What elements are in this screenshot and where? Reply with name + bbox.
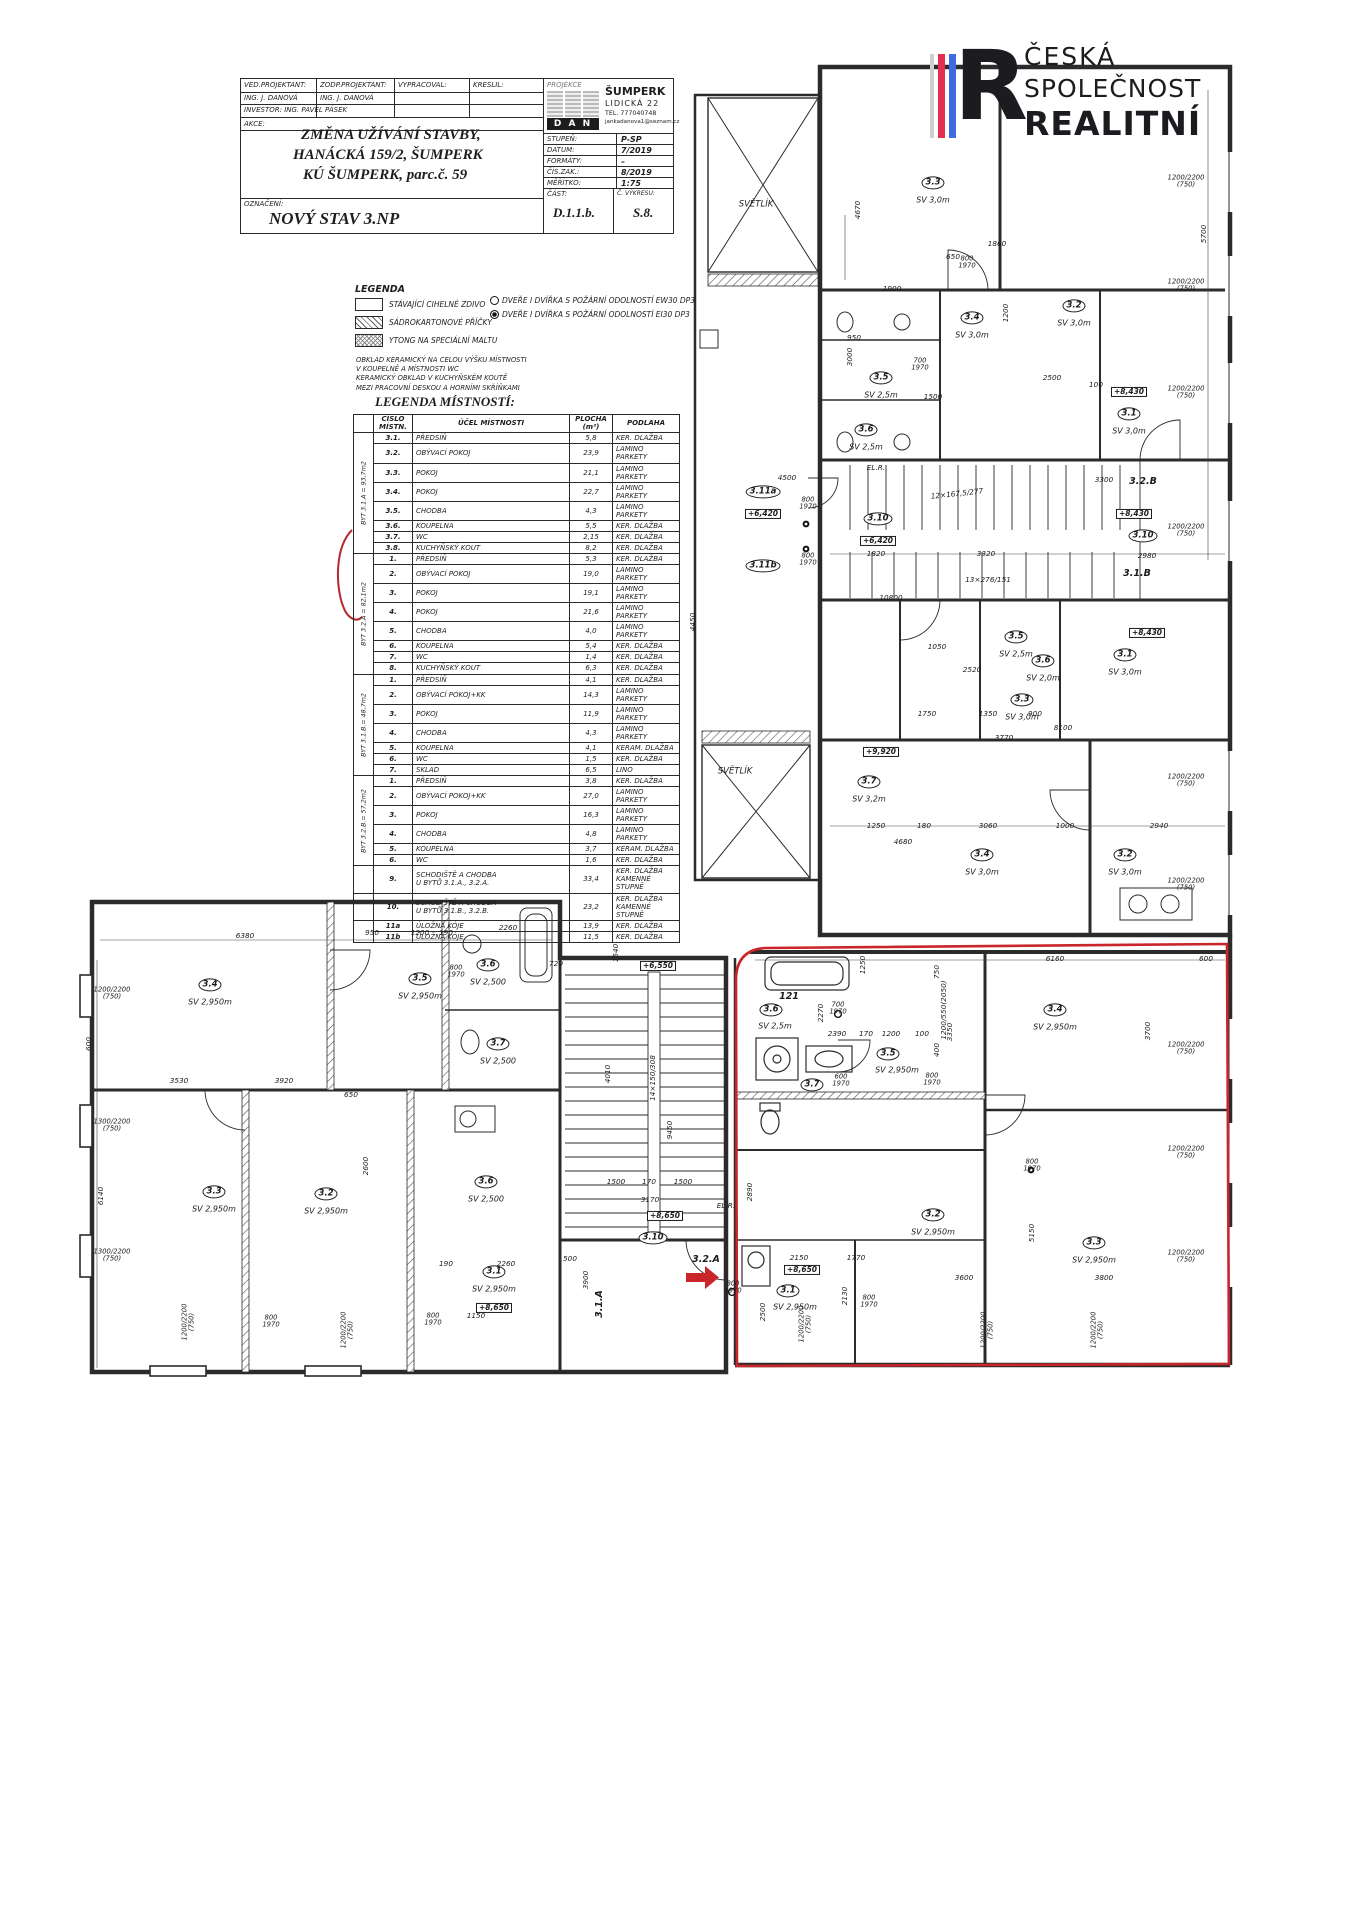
dan-logo: D A N bbox=[547, 118, 599, 130]
apartment-group-cell: BYT 3.2.A = 82,1m2 bbox=[354, 553, 374, 674]
swatch-brick-icon bbox=[355, 298, 383, 311]
vykres-label: Č. VÝKRESU: bbox=[617, 190, 655, 197]
table-row: 3.6.KOUPELNA5,5KER. DLAŽBA bbox=[354, 520, 680, 531]
legend-title: LEGENDA bbox=[355, 284, 775, 295]
table-row: 3.5.CHODBA4,3LAMINO PARKETY bbox=[354, 501, 680, 520]
table-row: 4.CHODBA4,3LAMINO PARKETY bbox=[354, 723, 680, 742]
table-row: 9.SCHODIŠTĚ A CHODBAU BYTŮ 3.1.A., 3.2.A… bbox=[354, 866, 680, 893]
column-header: ČÍSLOMÍSTN. bbox=[374, 415, 413, 433]
legend-item-label: STÁVAJÍCÍ CIHELNÉ ZDIVO bbox=[389, 300, 485, 309]
room-area-cell: 14,3 bbox=[570, 685, 613, 704]
room-purpose-cell: POKOJ bbox=[413, 584, 570, 603]
room-purpose-cell: POKOJ bbox=[413, 806, 570, 825]
room-floor-cell: KER. DLAŽBAKAMENNÉ STUPNĚ bbox=[613, 893, 680, 920]
projekce-label: PROJEKCE bbox=[547, 81, 582, 89]
room-floor-cell: KER. DLAŽBA bbox=[613, 433, 680, 444]
open-circle-icon bbox=[490, 296, 499, 305]
room-purpose-cell: PŘEDSÍŇ bbox=[413, 433, 570, 444]
project-title-line1: ZMĚNA UŽÍVÁNÍ STAVBY, bbox=[301, 127, 481, 144]
room-floor-cell: LAMINO PARKETY bbox=[613, 584, 680, 603]
field-value: 1:75 bbox=[621, 179, 641, 188]
room-purpose-cell: PŘEDSÍŇ bbox=[413, 775, 570, 786]
table-row: 3.7.WC2,15KER. DLAŽBA bbox=[354, 531, 680, 542]
room-purpose-cell: PŘEDSÍŇ bbox=[413, 553, 570, 564]
table-row: BYT 3.1.B.= 48,7m21.PŘEDSÍŇ4,1KER. DLAŽB… bbox=[354, 674, 680, 685]
room-number-cell: 4. bbox=[374, 603, 413, 622]
room-purpose-cell: OBÝVACÍ POKOJ bbox=[413, 444, 570, 463]
room-area-cell: 8,2 bbox=[570, 542, 613, 553]
room-number-cell: 5. bbox=[374, 742, 413, 753]
room-number-cell: 11b bbox=[374, 931, 413, 942]
room-number-cell: 3. bbox=[374, 704, 413, 723]
table-row: 11bÚLOŽNÁ KÓJE11,5KER. DLAŽBA bbox=[354, 931, 680, 942]
room-floor-cell: LAMINO PARKETY bbox=[613, 723, 680, 742]
table-row: 3.POKOJ16,3LAMINO PARKETY bbox=[354, 806, 680, 825]
room-area-cell: 11,9 bbox=[570, 704, 613, 723]
room-floor-cell: LAMINO PARKETY bbox=[613, 825, 680, 844]
room-number-cell: 4. bbox=[374, 723, 413, 742]
apartment-group-label: BYT 3.1.A = 93,7m2 bbox=[360, 461, 367, 525]
table-row: 4.POKOJ21,6LAMINO PARKETY bbox=[354, 603, 680, 622]
field-value: ING. J. DANOVÁ bbox=[244, 94, 298, 102]
room-floor-cell: KER. DLAŽBA bbox=[613, 663, 680, 674]
brand-line1: ČESKÁ bbox=[1024, 42, 1116, 71]
room-area-cell: 4,1 bbox=[570, 674, 613, 685]
room-floor-cell: LAMINO PARKETY bbox=[613, 806, 680, 825]
drawing-number: S.8. bbox=[633, 205, 653, 221]
room-purpose-cell: KOUPELNA bbox=[413, 520, 570, 531]
note-line: MEZI PRACOVNÍ DESKOU A HORNÍMI SKŘÍŇKAMI bbox=[356, 384, 527, 393]
field-label: ZODP.PROJEKTANT: bbox=[320, 81, 387, 89]
table-row: 3.POKOJ11,9LAMINO PARKETY bbox=[354, 704, 680, 723]
field-value: 7/2019 bbox=[621, 146, 652, 155]
room-floor-cell: KER. DLAŽBA bbox=[613, 753, 680, 764]
swatch-ytong-icon bbox=[355, 334, 383, 347]
room-floor-cell: LAMINO PARKETY bbox=[613, 463, 680, 482]
room-purpose-cell: ÚLOŽNÁ KÓJE bbox=[413, 920, 570, 931]
room-floor-cell: LAMINO PARKETY bbox=[613, 482, 680, 501]
room-floor-cell: LAMINO PARKETY bbox=[613, 704, 680, 723]
room-floor-cell: KER. DLAŽBA bbox=[613, 855, 680, 866]
room-purpose-cell: CHODBA bbox=[413, 622, 570, 641]
highlighted-apartment-walls bbox=[735, 935, 1234, 1365]
firm-street: LIDICKÁ 22 bbox=[605, 99, 659, 108]
room-floor-cell: KER. DLAŽBA bbox=[613, 920, 680, 931]
room-number-cell: 10. bbox=[374, 893, 413, 920]
highlight-outline bbox=[736, 944, 1229, 1366]
room-table: ČÍSLOMÍSTN. ÚČEL MÍSTNOSTI PLOCHA(m²) PO… bbox=[353, 414, 680, 943]
table-row: 6.WC1,5KER. DLAŽBA bbox=[354, 753, 680, 764]
room-floor-cell: KER. DLAŽBA bbox=[613, 641, 680, 652]
field-label: STUPEŇ: bbox=[547, 135, 577, 143]
room-area-cell: 4,3 bbox=[570, 723, 613, 742]
logo-stripe-gray bbox=[930, 54, 934, 138]
room-area-cell: 19,0 bbox=[570, 564, 613, 583]
room-area-cell: 6,5 bbox=[570, 764, 613, 775]
room-area-cell: 21,1 bbox=[570, 463, 613, 482]
table-row: 5.CHODBA4,0LAMINO PARKETY bbox=[354, 622, 680, 641]
room-floor-cell: KER. DLAŽBA bbox=[613, 553, 680, 564]
room-floor-cell: KER. DLAŽBA bbox=[613, 531, 680, 542]
room-area-cell: 5,5 bbox=[570, 520, 613, 531]
room-number-cell: 3.2. bbox=[374, 444, 413, 463]
room-area-cell: 2,15 bbox=[570, 531, 613, 542]
upper-block-walls bbox=[695, 67, 1234, 935]
room-purpose-cell: SCHODIŠTĚ A CHODBAU BYTŮ 3.1.A., 3.2.A. bbox=[413, 866, 570, 893]
table-row: 5.KOUPELNA4,1KERAM. DLAŽBA bbox=[354, 742, 680, 753]
room-area-cell: 1,5 bbox=[570, 753, 613, 764]
field-value: P-SP bbox=[621, 135, 642, 144]
akce-label: AKCE: bbox=[244, 120, 265, 128]
project-title-line3: KÚ ŠUMPERK, parc.č. 59 bbox=[303, 167, 467, 184]
field-value: – bbox=[621, 157, 625, 166]
note-line: V KOUPELNĚ A MÍSTNOSTI WC bbox=[356, 365, 527, 374]
room-floor-cell: LAMINO PARKETY bbox=[613, 564, 680, 583]
room-number-cell: 7. bbox=[374, 764, 413, 775]
room-area-cell: 5,4 bbox=[570, 641, 613, 652]
room-purpose-cell: POKOJ bbox=[413, 603, 570, 622]
room-area-cell: 4,8 bbox=[570, 825, 613, 844]
room-purpose-cell: SCHODIŠTĚ A CHODBAU BYTŮ 3.1.B., 3.2.B. bbox=[413, 893, 570, 920]
room-number-cell: 5. bbox=[374, 622, 413, 641]
apartment-group-cell bbox=[354, 866, 374, 893]
room-area-cell: 4,3 bbox=[570, 501, 613, 520]
table-row: 6.WC1,6KER. DLAŽBA bbox=[354, 855, 680, 866]
table-row: 8.KUCHYŇSKÝ KOUT6,3KER. DLAŽBA bbox=[354, 663, 680, 674]
room-purpose-cell: KUCHYŇSKÝ KOUT bbox=[413, 663, 570, 674]
room-area-cell: 3,7 bbox=[570, 844, 613, 855]
column-header: PLOCHA(m²) bbox=[570, 415, 613, 433]
swatch-drywall-icon bbox=[355, 316, 383, 329]
room-table-title: LEGENDA MÍSTNOSTÍ: bbox=[375, 394, 680, 410]
table-row: 4.CHODBA4,8LAMINO PARKETY bbox=[354, 825, 680, 844]
fire-door-markers bbox=[729, 521, 1035, 1296]
room-area-cell: 13,9 bbox=[570, 920, 613, 931]
room-area-cell: 19,1 bbox=[570, 584, 613, 603]
room-floor-cell: LAMINO PARKETY bbox=[613, 501, 680, 520]
table-row: 7.SKLAD6,5LINO bbox=[354, 764, 680, 775]
room-number-cell: 3.6. bbox=[374, 520, 413, 531]
room-number-cell: 8. bbox=[374, 663, 413, 674]
room-number-cell: 3.5. bbox=[374, 501, 413, 520]
room-area-cell: 6,3 bbox=[570, 663, 613, 674]
room-floor-cell: LAMINO PARKETY bbox=[613, 603, 680, 622]
column-header: ÚČEL MÍSTNOSTI bbox=[413, 415, 570, 433]
room-purpose-cell: SKLAD bbox=[413, 764, 570, 775]
fire-door-legend-ew30: DVEŘE I DVÍŘKA S POŽÁRNÍ ODOLNOSTÍ EW30 … bbox=[490, 296, 695, 305]
apartment-group-cell bbox=[354, 893, 374, 920]
room-floor-cell: LAMINO PARKETY bbox=[613, 787, 680, 806]
room-purpose-cell: OBÝVACÍ POKOJ bbox=[413, 564, 570, 583]
room-area-cell: 5,3 bbox=[570, 553, 613, 564]
room-number-cell: 6. bbox=[374, 855, 413, 866]
table-row: 2.OBÝVACÍ POKOJ19,0LAMINO PARKETY bbox=[354, 564, 680, 583]
project-title-line2: HANÁCKÁ 159/2, ŠUMPERK bbox=[293, 147, 483, 164]
room-purpose-cell: PŘEDSÍŇ bbox=[413, 674, 570, 685]
fire-door-legend-ei30: DVEŘE I DVÍŘKA S POŽÁRNÍ ODOLNOSTÍ EI30 … bbox=[490, 310, 690, 319]
room-area-cell: 27,0 bbox=[570, 787, 613, 806]
table-row: BYT 3.1.A = 93,7m23.1.PŘEDSÍŇ5,8KER. DLA… bbox=[354, 433, 680, 444]
logo-r-mark: R bbox=[954, 38, 1028, 134]
legend-item-label: YTONG NA SPECIÁLNÍ MALTU bbox=[389, 336, 497, 345]
room-number-cell: 3.8. bbox=[374, 542, 413, 553]
room-area-cell: 3,8 bbox=[570, 775, 613, 786]
table-row: 3.POKOJ19,1LAMINO PARKETY bbox=[354, 584, 680, 603]
room-floor-cell: KERAM. DLAŽBA bbox=[613, 844, 680, 855]
field-label: MĚŘÍTKO: bbox=[547, 179, 581, 187]
room-number-cell: 2. bbox=[374, 787, 413, 806]
table-row: 3.2.OBÝVACÍ POKOJ23,9LAMINO PARKETY bbox=[354, 444, 680, 463]
room-number-cell: 3.4. bbox=[374, 482, 413, 501]
room-floor-cell: LAMINO PARKETY bbox=[613, 444, 680, 463]
room-area-cell: 4,1 bbox=[570, 742, 613, 753]
room-purpose-cell: WC bbox=[413, 652, 570, 663]
room-number-cell: 7. bbox=[374, 652, 413, 663]
fire-door-label: DVEŘE I DVÍŘKA S POŽÁRNÍ ODOLNOSTÍ EW30 … bbox=[502, 296, 695, 305]
apartment-group-cell: BYT 3.2.B.= 57,2m2 bbox=[354, 775, 374, 865]
field-value: 8/2019 bbox=[621, 168, 652, 177]
apartment-arrow-icon bbox=[686, 1266, 719, 1289]
room-area-cell: 5,8 bbox=[570, 433, 613, 444]
room-area-cell: 22,7 bbox=[570, 482, 613, 501]
room-floor-cell: LAMINO PARKETY bbox=[613, 622, 680, 641]
firm-tel: TEL. 777040748 bbox=[605, 110, 656, 117]
room-floor-cell: KER. DLAŽBA bbox=[613, 652, 680, 663]
room-number-cell: 1. bbox=[374, 553, 413, 564]
room-number-cell: 1. bbox=[374, 674, 413, 685]
room-number-cell: 9. bbox=[374, 866, 413, 893]
room-number-cell: 11a bbox=[374, 920, 413, 931]
room-floor-cell: KER. DLAŽBA bbox=[613, 542, 680, 553]
room-area-cell: 23,2 bbox=[570, 893, 613, 920]
table-row: 2.OBÝVACÍ POKOJ+KK27,0LAMINO PARKETY bbox=[354, 787, 680, 806]
table-row: 3.3.POKOJ21,1LAMINO PARKETY bbox=[354, 463, 680, 482]
room-area-cell: 21,6 bbox=[570, 603, 613, 622]
room-number-cell: 3. bbox=[374, 806, 413, 825]
room-purpose-cell: POKOJ bbox=[413, 482, 570, 501]
room-purpose-cell: POKOJ bbox=[413, 463, 570, 482]
room-purpose-cell: KOUPELNA bbox=[413, 742, 570, 753]
room-floor-cell: KERAM. DLAŽBA bbox=[613, 742, 680, 753]
apartment-group-cell: BYT 3.1.A = 93,7m2 bbox=[354, 433, 374, 554]
table-row: 10.SCHODIŠTĚ A CHODBAU BYTŮ 3.1.B., 3.2.… bbox=[354, 893, 680, 920]
legend: LEGENDA STÁVAJÍCÍ CIHELNÉ ZDIVO SÁDROKAR… bbox=[355, 284, 775, 394]
legend-item: SÁDROKARTONOVÉ PŘÍČKY bbox=[355, 316, 492, 329]
finish-notes: OBKLAD KERAMICKÝ NA CELOU VÝŠKU MÍSTNOST… bbox=[356, 356, 527, 393]
field-label: VED.PROJEKTANT: bbox=[244, 81, 306, 89]
room-purpose-cell: WC bbox=[413, 855, 570, 866]
room-area-cell: 33,4 bbox=[570, 866, 613, 893]
apartment-group-cell bbox=[354, 920, 374, 942]
field-label: ČÍS.ZAK.: bbox=[547, 168, 579, 176]
room-area-cell: 1,4 bbox=[570, 652, 613, 663]
legend-item-label: SÁDROKARTONOVÉ PŘÍČKY bbox=[389, 318, 492, 327]
room-purpose-cell: CHODBA bbox=[413, 723, 570, 742]
dan-logo-panels bbox=[547, 91, 599, 117]
room-purpose-cell: KUCHYŇSKÝ KOUT bbox=[413, 542, 570, 553]
brand-line2: SPOLEČNOST bbox=[1024, 74, 1201, 103]
room-purpose-cell: KOUPELNA bbox=[413, 844, 570, 855]
room-number-cell: 2. bbox=[374, 564, 413, 583]
room-area-cell: 11,5 bbox=[570, 931, 613, 942]
room-purpose-cell: WC bbox=[413, 753, 570, 764]
room-floor-cell: KER. DLAŽBA bbox=[613, 775, 680, 786]
firm-email: jankadanova1@seznam.cz bbox=[605, 119, 679, 125]
table-row: 2.OBÝVACÍ POKOJ+KK14,3LAMINO PARKETY bbox=[354, 685, 680, 704]
room-number-cell: 6. bbox=[374, 641, 413, 652]
field-label: FORMÁTY: bbox=[547, 157, 582, 165]
table-row: BYT 3.2.A = 82,1m21.PŘEDSÍŇ5,3KER. DLAŽB… bbox=[354, 553, 680, 564]
table-row: 7.WC1,4KER. DLAŽBA bbox=[354, 652, 680, 663]
note-line: OBKLAD KERAMICKÝ NA CELOU VÝŠKU MÍSTNOST… bbox=[356, 356, 527, 365]
room-purpose-cell: ÚLOŽNÁ KÓJE bbox=[413, 931, 570, 942]
table-row: 11aÚLOŽNÁ KÓJE13,9KER. DLAŽBA bbox=[354, 920, 680, 931]
table-row: 3.8.KUCHYŇSKÝ KOUT8,2KER. DLAŽBA bbox=[354, 542, 680, 553]
room-number-cell: 6. bbox=[374, 753, 413, 764]
room-floor-cell: KER. DLAŽBA bbox=[613, 520, 680, 531]
oznaceni-label: OZNAČENÍ: bbox=[244, 200, 283, 208]
field-label: DATUM: bbox=[547, 146, 574, 154]
room-number-cell: 3. bbox=[374, 584, 413, 603]
firm-city: ŠUMPERK bbox=[605, 85, 665, 98]
fire-door-label: DVEŘE I DVÍŘKA S POŽÁRNÍ ODOLNOSTÍ EI30 … bbox=[502, 310, 690, 319]
column-header: PODLAHA bbox=[613, 415, 680, 433]
room-number-cell: 2. bbox=[374, 685, 413, 704]
room-number-cell: 3.3. bbox=[374, 463, 413, 482]
investor-label: INVESTOR: ING. PAVEL PÁSEK bbox=[244, 106, 347, 114]
room-purpose-cell: POKOJ bbox=[413, 704, 570, 723]
room-number-cell: 5. bbox=[374, 844, 413, 855]
room-purpose-cell: OBÝVACÍ POKOJ+KK bbox=[413, 685, 570, 704]
cast-label: ČÁST: bbox=[547, 190, 567, 198]
room-purpose-cell: OBÝVACÍ POKOJ+KK bbox=[413, 787, 570, 806]
room-floor-cell: KER. DLAŽBA bbox=[613, 674, 680, 685]
field-value: ING. J. DANOVÁ bbox=[320, 94, 374, 102]
room-floor-cell: KER. DLAŽBAKAMENNÉ STUPNĚ bbox=[613, 866, 680, 893]
room-number-cell: 1. bbox=[374, 775, 413, 786]
field-label: VYPRACOVAL: bbox=[398, 81, 447, 89]
table-row: BYT 3.2.B.= 57,2m21.PŘEDSÍŇ3,8KER. DLAŽB… bbox=[354, 775, 680, 786]
room-area-cell: 16,3 bbox=[570, 806, 613, 825]
table-row: 5.KOUPELNA3,7KERAM. DLAŽBA bbox=[354, 844, 680, 855]
apartment-group-label: BYT 3.2.A = 82,1m2 bbox=[360, 582, 367, 646]
room-purpose-cell: KOUPELNA bbox=[413, 641, 570, 652]
room-area-cell: 4,0 bbox=[570, 622, 613, 641]
title-block: VED.PROJEKTANT: ZODP.PROJEKTANT: VYPRACO… bbox=[240, 78, 674, 234]
room-floor-cell: LINO bbox=[613, 764, 680, 775]
note-line: KERAMICKÝ OBKLAD V KUCHYŇSKÉM KOUTĚ bbox=[356, 374, 527, 383]
header-spacer bbox=[354, 415, 374, 433]
left-wing-walls bbox=[80, 902, 726, 1376]
room-number-cell: 3.7. bbox=[374, 531, 413, 542]
room-number-cell: 3.1. bbox=[374, 433, 413, 444]
field-label: KRESLIL: bbox=[473, 81, 504, 89]
room-purpose-cell: WC bbox=[413, 531, 570, 542]
room-floor-cell: LAMINO PARKETY bbox=[613, 685, 680, 704]
apartment-group-label: BYT 3.1.B.= 48,7m2 bbox=[360, 693, 367, 757]
brand-logo: R ČESKÁ SPOLEČNOST REALITNÍ bbox=[928, 42, 1208, 142]
room-purpose-cell: CHODBA bbox=[413, 501, 570, 520]
room-purpose-cell: CHODBA bbox=[413, 825, 570, 844]
room-area-cell: 1,6 bbox=[570, 855, 613, 866]
logo-stripe-red bbox=[938, 54, 945, 138]
room-legend: LEGENDA MÍSTNOSTÍ: ČÍSLOMÍSTN. ÚČEL MÍST… bbox=[353, 394, 680, 943]
apartment-group-cell: BYT 3.1.B.= 48,7m2 bbox=[354, 674, 374, 775]
room-area-cell: 23,9 bbox=[570, 444, 613, 463]
brand-line3: REALITNÍ bbox=[1024, 104, 1201, 143]
cast-value: D.1.1.b. bbox=[553, 205, 595, 221]
table-row: 6.KOUPELNA5,4KER. DLAŽBA bbox=[354, 641, 680, 652]
table-row: 3.4.POKOJ22,7LAMINO PARKETY bbox=[354, 482, 680, 501]
door-swing-arcs bbox=[205, 250, 1180, 1280]
legend-item: STÁVAJÍCÍ CIHELNÉ ZDIVO bbox=[355, 298, 485, 311]
apartment-group-label: BYT 3.2.B.= 57,2m2 bbox=[360, 789, 367, 853]
room-number-cell: 4. bbox=[374, 825, 413, 844]
room-floor-cell: KER. DLAŽBA bbox=[613, 931, 680, 942]
drawing-name: NOVÝ STAV 3.NP bbox=[269, 209, 399, 229]
legend-item: YTONG NA SPECIÁLNÍ MALTU bbox=[355, 334, 497, 347]
filled-circle-icon bbox=[490, 310, 499, 319]
